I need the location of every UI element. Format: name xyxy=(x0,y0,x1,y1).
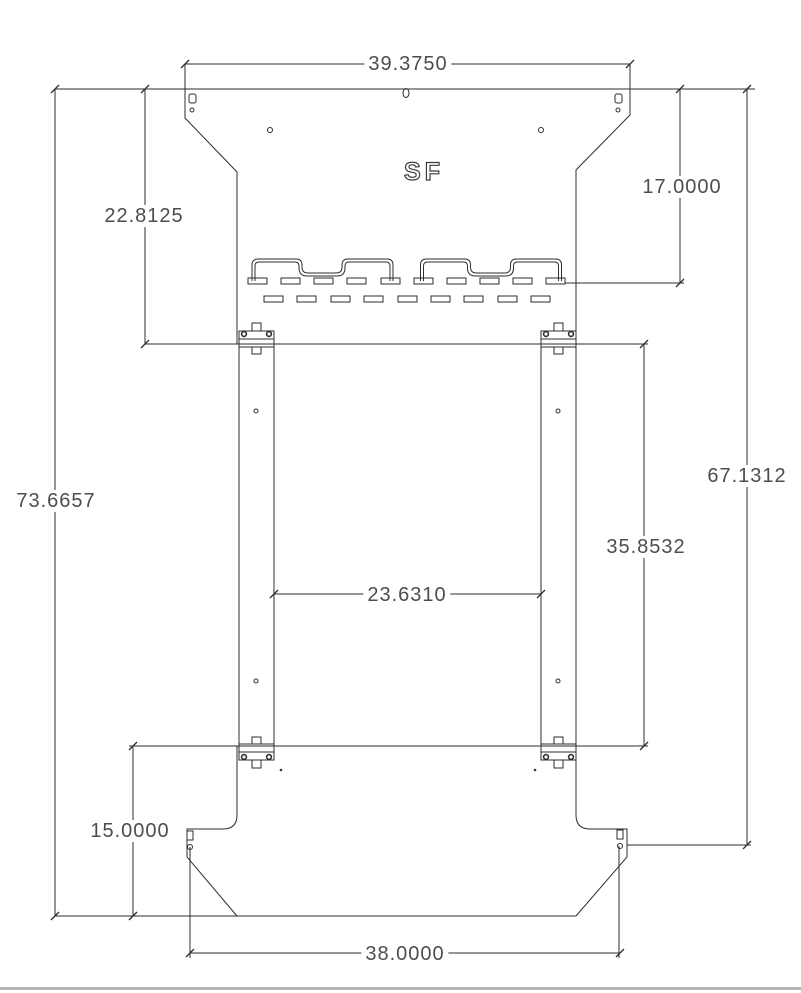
dimension-label-slot-row-offset: 17.0000 xyxy=(638,176,725,198)
dimension-label-top-width: 39.3750 xyxy=(364,53,451,75)
dimension-label-rail-inner-gap: 23.6310 xyxy=(363,584,450,606)
top-left-bracket xyxy=(239,323,274,354)
cotter-pin-dot xyxy=(280,769,283,772)
right-rail-hole-upper xyxy=(556,409,560,413)
dimension-label-lower-plate-height: 15.0000 xyxy=(86,820,173,842)
upper-plate-hole xyxy=(190,108,194,112)
upper-plate-slot-left xyxy=(189,94,196,103)
left-rail-hole-lower xyxy=(254,679,258,683)
top-center-notch xyxy=(403,89,409,98)
part-drawing xyxy=(0,0,801,993)
logo-text: SF xyxy=(402,159,446,185)
upper-plate-hole xyxy=(539,128,544,133)
dimension-label-upper-plate-height: 22.8125 xyxy=(100,205,187,227)
dim-line-bottom-hole-span xyxy=(190,846,620,958)
lower-plate-outline xyxy=(187,746,627,916)
lower-plate-slot-left xyxy=(187,831,193,840)
lower-plate-hole-right xyxy=(618,844,623,849)
dimension-label-overall-height: 73.6657 xyxy=(12,490,99,512)
bottom-left-bracket xyxy=(239,737,282,771)
taskbar-edge xyxy=(0,987,801,990)
top-right-bracket xyxy=(541,323,576,354)
drawing-canvas: 39.3750 22.8125 17.0000 73.6657 67.1312 … xyxy=(0,0,801,993)
slot-row-bottom xyxy=(264,296,550,302)
bottom-right-bracket xyxy=(534,737,576,771)
upper-plate-hole xyxy=(268,128,273,133)
left-rail xyxy=(239,331,274,760)
upper-plate-outline xyxy=(185,89,630,345)
right-rail xyxy=(541,331,576,760)
cotter-pin-dot xyxy=(534,769,537,772)
dimension-label-rail-length: 35.8532 xyxy=(602,536,689,558)
lower-plate-slot-right xyxy=(617,830,623,839)
dimension-label-side-hole-height: 67.1312 xyxy=(703,465,790,487)
upper-plate-hole xyxy=(616,108,620,112)
dimension-label-bottom-hole-span: 38.0000 xyxy=(361,943,448,965)
upper-plate-slot-right xyxy=(615,94,622,103)
slot-row-top xyxy=(248,278,565,284)
left-rail-hole-upper xyxy=(254,409,258,413)
right-rail-hole-lower xyxy=(556,679,560,683)
